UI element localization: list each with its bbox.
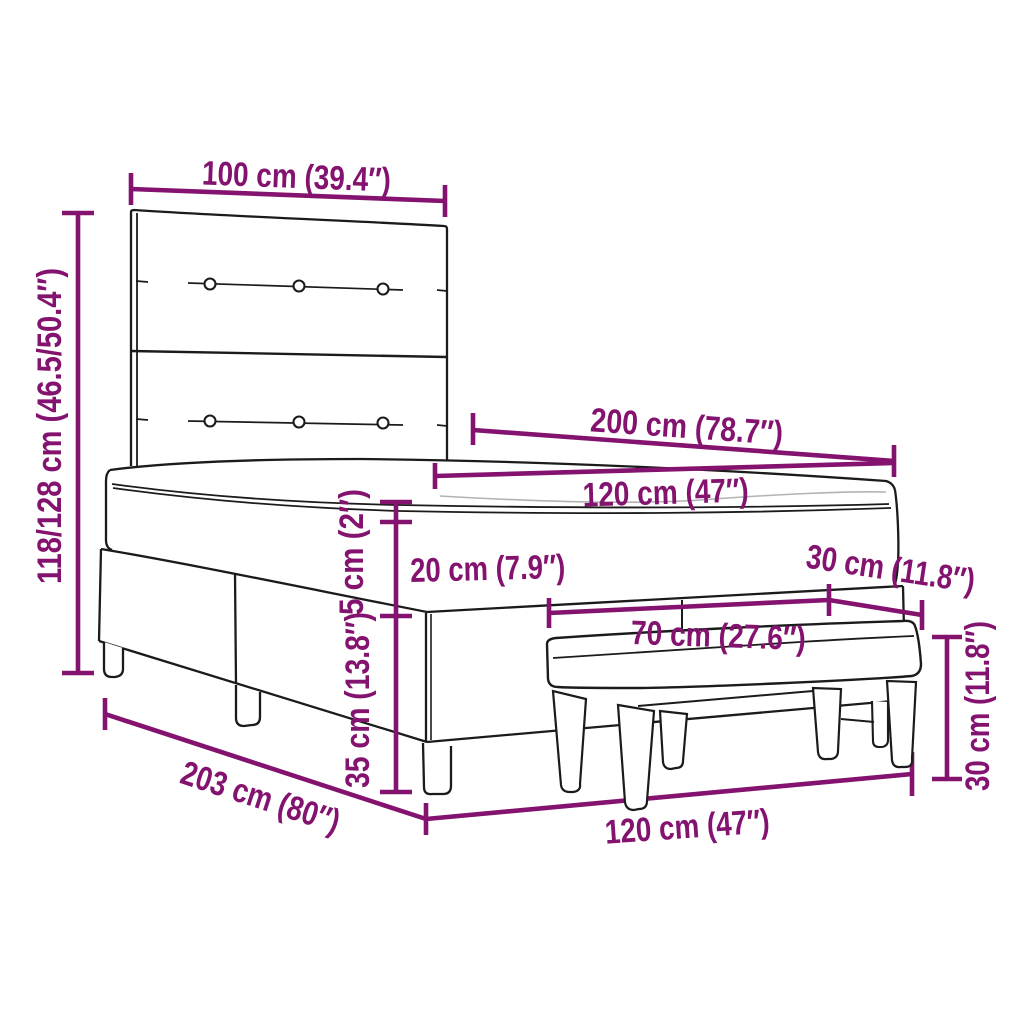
svg-text:20 cm (7.9″): 20 cm (7.9″) xyxy=(410,548,566,590)
svg-text:30 cm (11.8″): 30 cm (11.8″) xyxy=(959,621,997,791)
svg-text:35 cm (13.8″): 35 cm (13.8″) xyxy=(339,612,377,788)
svg-text:120 cm (47″): 120 cm (47″) xyxy=(582,472,749,515)
svg-text:100 cm (39.4″): 100 cm (39.4″) xyxy=(201,154,391,199)
svg-text:70 cm (27.6″): 70 cm (27.6″) xyxy=(630,614,806,658)
svg-text:118/128 cm (46.5/50.4″): 118/128 cm (46.5/50.4″) xyxy=(31,268,69,584)
svg-text:5 cm (2″): 5 cm (2″) xyxy=(333,489,371,615)
